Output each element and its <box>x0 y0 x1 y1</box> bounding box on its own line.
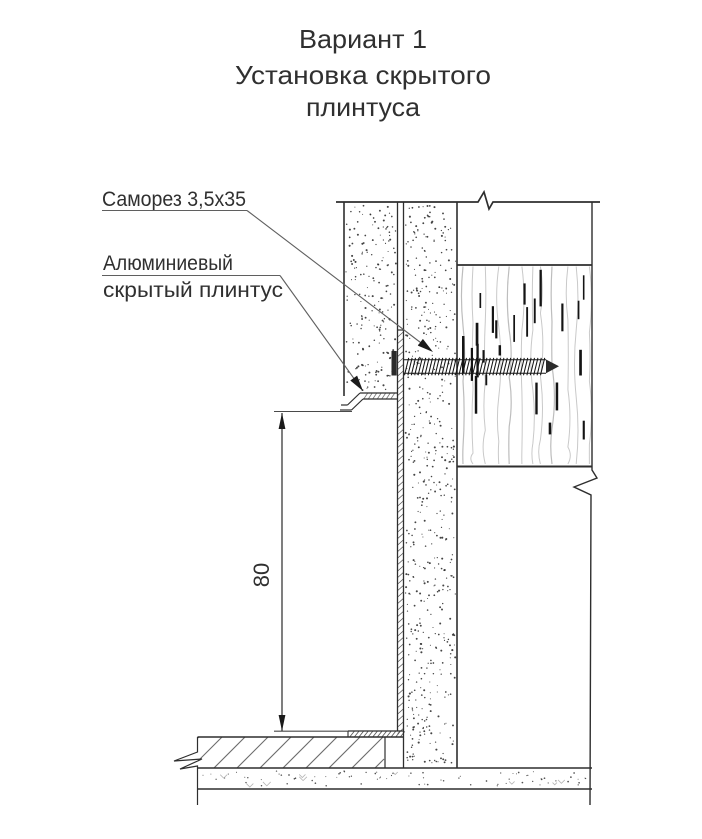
plinth-callout-label-line2: скрытый плинтус <box>103 279 283 302</box>
plinth-leader-arrowhead <box>350 376 363 391</box>
drawing-canvas: Вариант 1 Установка скрытого плинтуса <box>0 0 702 839</box>
technical-drawing-page: Вариант 1 Установка скрытого плинтуса <box>0 0 702 839</box>
screw-callout-label: Саморез 3,5x35 <box>102 188 246 211</box>
plinth-leader-line <box>280 276 362 390</box>
wall-top-line-with-break <box>336 192 600 209</box>
title-line-1: Вариант 1 <box>299 24 427 54</box>
floor-finish-hatch <box>198 737 384 768</box>
flange-diagonal-2 <box>352 399 364 410</box>
plinth-plate-hatch <box>398 332 404 734</box>
dimension-80: 80 <box>249 412 352 732</box>
screw-leader-arrowhead <box>418 339 433 352</box>
title-line-3: плинтуса <box>306 92 421 122</box>
plinth-flange-hatch <box>364 393 395 398</box>
dim-arrow-up <box>279 413 286 429</box>
title-line-2: Установка скрытого <box>235 60 491 90</box>
slab-stipple <box>203 770 587 787</box>
floor-assembly <box>174 731 592 805</box>
callouts: Саморез 3,5x35 Алюминиевый скрытый плинт… <box>102 188 433 391</box>
left-break-line <box>174 737 202 805</box>
dim-arrow-down <box>279 715 286 731</box>
plinth-foot-hatch <box>350 731 405 736</box>
screw-head <box>392 351 397 376</box>
plinth-callout-label-line1: Алюминиевый <box>103 252 233 275</box>
dim-value: 80 <box>249 563 274 587</box>
wall-section <box>336 192 600 805</box>
title-block: Вариант 1 Установка скрытого плинтуса <box>235 24 491 122</box>
screw-thread-hatch <box>405 358 545 375</box>
outer-drywall-stipple <box>345 205 397 391</box>
inner-drywall-stipple <box>405 205 457 764</box>
